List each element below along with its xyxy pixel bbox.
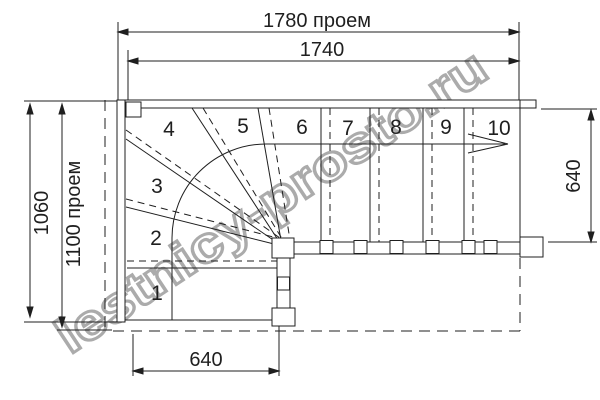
dim-label-bottom-width: 640: [189, 349, 222, 371]
step-label-9: 9: [440, 116, 452, 139]
dim-label-top-opening: 1780 проем: [263, 10, 371, 32]
handrail: [272, 237, 543, 326]
handrail-end-post: [520, 237, 543, 257]
baluster: [462, 241, 475, 254]
step-label-1: 1: [151, 282, 163, 305]
left-stringer: [117, 100, 125, 322]
step-label-10: 10: [487, 117, 510, 140]
step-label-8: 8: [390, 116, 402, 139]
step-label-3: 3: [151, 175, 163, 198]
top-left-post: [126, 102, 141, 117]
dim-label-left-opening: 1100 проем: [63, 161, 85, 268]
staircase-plan-page: lestnicy-prosto.ru: [0, 0, 600, 400]
step-label-6: 6: [296, 116, 308, 139]
dim-label-right-width: 640: [563, 159, 585, 192]
step-label-4: 4: [163, 118, 175, 141]
staircase-plan-drawing: lestnicy-prosto.ru: [0, 0, 600, 400]
center-newel-post: [272, 238, 294, 258]
step-label-2: 2: [150, 227, 162, 250]
baluster: [426, 241, 439, 254]
dim-label-top-inner: 1740: [300, 39, 345, 61]
baluster: [354, 241, 367, 254]
step-label-7: 7: [342, 117, 354, 140]
bottom-newel-post: [272, 308, 295, 326]
watermark: lestnicy-prosto.ru: [45, 39, 497, 364]
baluster: [484, 241, 497, 254]
baluster: [320, 241, 333, 254]
baluster: [390, 241, 403, 254]
top-stringer: [117, 100, 536, 108]
dim-label-left-height: 1060: [31, 191, 53, 236]
step-label-5: 5: [237, 115, 249, 138]
watermark-text: lestnicy-prosto.ru: [45, 39, 497, 364]
baluster: [278, 277, 290, 290]
